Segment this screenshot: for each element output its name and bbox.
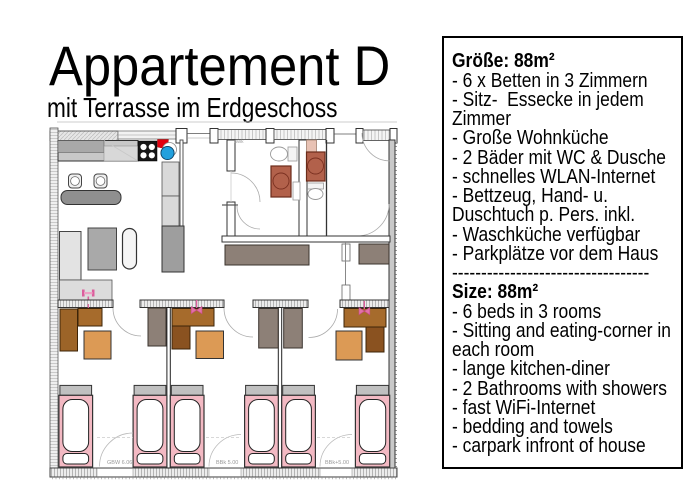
svg-text:BWk: BWk	[234, 139, 244, 144]
svg-text:BBk 5.00: BBk 5.00	[216, 460, 238, 466]
svg-text:BBk+5.00: BBk+5.00	[325, 460, 349, 466]
svg-text:GBW 6.06: GBW 6.06	[107, 460, 132, 466]
